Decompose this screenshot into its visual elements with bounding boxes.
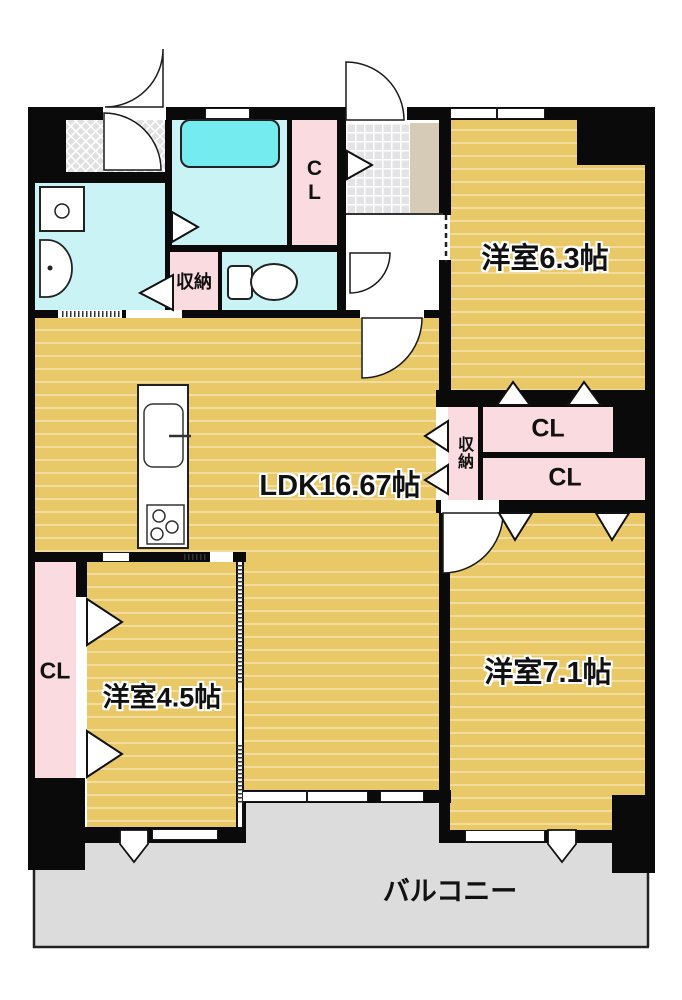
wall-wash-bath bbox=[165, 112, 172, 245]
wall-hall-east-lower bbox=[439, 260, 451, 390]
door-gap-ldk bbox=[360, 310, 424, 318]
window-45-top bbox=[102, 552, 130, 562]
balcony-area bbox=[33, 870, 88, 948]
room-ldk-lower bbox=[240, 560, 439, 790]
wall-71-west bbox=[439, 513, 450, 830]
window-bath bbox=[205, 108, 250, 119]
label-balcony: バルコニー bbox=[383, 870, 517, 909]
door-gap-71 bbox=[441, 500, 499, 513]
door-arc-toilet bbox=[350, 253, 390, 293]
window-71 bbox=[465, 830, 545, 842]
wall-bath-cl bbox=[287, 112, 292, 245]
bathroom bbox=[172, 120, 287, 245]
wall-pillar-se bbox=[612, 795, 655, 873]
label-closet-bath: CL bbox=[302, 157, 326, 205]
door-gap-wash bbox=[126, 310, 182, 318]
wall-block-topright bbox=[577, 107, 655, 165]
wall-block-topleft bbox=[28, 107, 66, 172]
entry-alcove bbox=[66, 120, 165, 172]
folding-door-strip-east bbox=[436, 407, 448, 500]
label-east-storage: 収納 bbox=[451, 436, 475, 470]
balcony-area bbox=[85, 843, 612, 948]
label-closet-west: CL bbox=[40, 658, 71, 685]
entry-step-line bbox=[346, 213, 443, 215]
window-ldk-2 bbox=[380, 791, 424, 802]
label-closet-east-top: CL bbox=[531, 415, 564, 444]
window-ldk-1 bbox=[242, 791, 368, 802]
window-45 bbox=[152, 829, 218, 840]
label-closet-east-bottom: CL bbox=[548, 464, 581, 493]
label-hall-storage: 収納 bbox=[176, 268, 212, 294]
wall-cltop-east bbox=[613, 407, 648, 458]
label-bedroom-7-1: 洋室7.1帖 bbox=[484, 649, 611, 691]
wall-storage-toilet bbox=[218, 252, 222, 310]
wall-hall-west bbox=[337, 107, 346, 318]
wall-clwest-post bbox=[76, 562, 87, 597]
balcony-area bbox=[612, 873, 649, 948]
window-63 bbox=[450, 108, 545, 119]
wall-bath-bottom bbox=[165, 245, 346, 252]
wall-wash-storage bbox=[165, 245, 170, 310]
wall-block-sw bbox=[28, 778, 85, 870]
label-bedroom-4-5: 洋室4.5帖 bbox=[103, 676, 222, 715]
wall-between-cls bbox=[483, 452, 613, 458]
door-arc-alcove-out bbox=[105, 49, 163, 107]
floor-plan: 洋室6.3帖 LDK16.67帖 洋室4.5帖 洋室7.1帖 バルコニー CL … bbox=[0, 0, 682, 1000]
door-gap-alcove bbox=[103, 107, 166, 120]
wall-hall-east-upper bbox=[439, 107, 451, 215]
balcony-area bbox=[244, 803, 439, 848]
gap-45-top bbox=[210, 552, 233, 562]
entry-tile bbox=[346, 123, 410, 215]
wall-clrow-top bbox=[436, 390, 655, 407]
toilet-room bbox=[222, 252, 338, 310]
wall-alcove-bottom bbox=[28, 172, 165, 183]
door-gap-entry bbox=[346, 107, 407, 120]
wall-left bbox=[28, 107, 35, 778]
sliding-gap-wash bbox=[58, 310, 122, 318]
washroom bbox=[35, 183, 165, 310]
sliding-door-channel-45 bbox=[236, 562, 244, 827]
label-ldk: LDK16.67帖 bbox=[259, 462, 420, 504]
folding-door-strip-west bbox=[76, 597, 87, 778]
room-ldk-upper bbox=[35, 318, 443, 560]
label-bedroom-6-3: 洋室6.3帖 bbox=[481, 235, 608, 277]
